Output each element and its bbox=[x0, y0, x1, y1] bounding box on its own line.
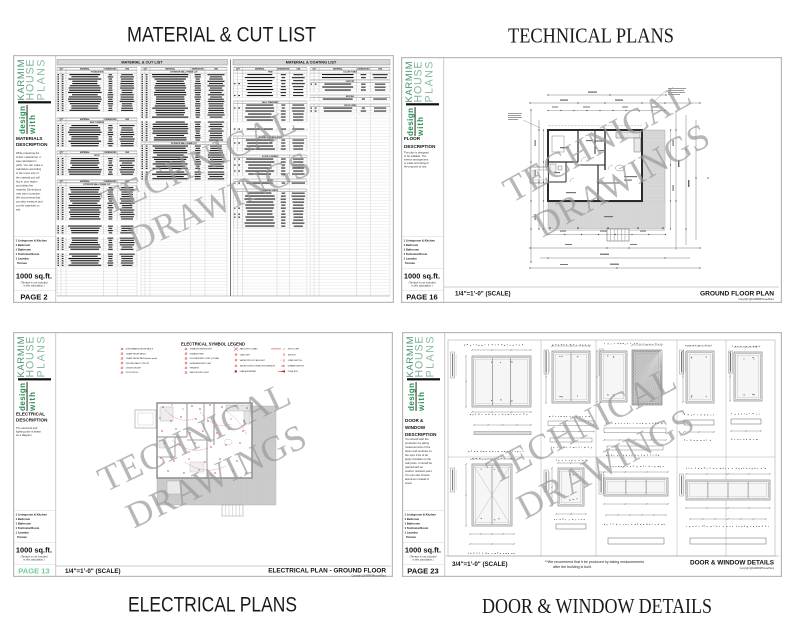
svg-text:ELECTRICAL PLANS: ELECTRICAL PLANS bbox=[128, 594, 297, 617]
svg-text:1 Bedroom: 1 Bedroom bbox=[405, 517, 420, 521]
svg-text:material. Dimensions: material. Dimensions bbox=[16, 187, 42, 191]
svg-text:S: S bbox=[283, 353, 285, 357]
svg-text:Terrace: Terrace bbox=[16, 261, 28, 265]
svg-text:Copyright @KARMIMHousePlans: Copyright @KARMIMHousePlans bbox=[352, 574, 387, 577]
svg-text:1 Bathroom: 1 Bathroom bbox=[16, 522, 32, 526]
svg-text:While preparing the: While preparing the bbox=[16, 151, 40, 155]
svg-text:production by taking: production by taking bbox=[405, 441, 430, 445]
svg-text:as a diagram.: as a diagram. bbox=[16, 433, 33, 437]
svg-text:1 Livingroom & Kitchen: 1 Livingroom & Kitchen bbox=[16, 513, 48, 517]
svg-text:PUSH BOX: PUSH BOX bbox=[288, 371, 299, 373]
svg-text:15 AMP RECEPTACLE: 15 AMP RECEPTACLE bbox=[126, 352, 147, 355]
svg-text:design: design bbox=[18, 106, 27, 134]
svg-text:1 Technical Room: 1 Technical Room bbox=[405, 526, 429, 530]
svg-text:1 Technical Room: 1 Technical Room bbox=[16, 526, 40, 530]
svg-text:parts. You can make a: parts. You can make a bbox=[16, 163, 43, 167]
svg-text:MATERIALS: MATERIALS bbox=[16, 136, 42, 141]
svg-text:1 Laundry: 1 Laundry bbox=[16, 257, 30, 261]
svg-text:15 AMP RECEPTACLE(water-proof): 15 AMP RECEPTACLE(water-proof) bbox=[126, 357, 158, 360]
svg-text:1 Bathroom: 1 Bathroom bbox=[404, 248, 420, 252]
svg-text:ELECTRICAL PLAN - GROUND FLOOR: ELECTRICAL PLAN - GROUND FLOOR bbox=[268, 568, 386, 575]
svg-text:WINDOW: WINDOW bbox=[405, 425, 426, 430]
svg-text:PENDENT: PENDENT bbox=[190, 368, 200, 370]
svg-text:to be editable. The: to be editable. The bbox=[404, 154, 427, 158]
svg-text:wall joints. It should be: wall joints. It should be bbox=[405, 461, 433, 465]
svg-text:in this calculation.): in this calculation.) bbox=[412, 558, 433, 562]
svg-text:**We recommend that it be prod: **We recommend that it be produced by ta… bbox=[545, 560, 644, 564]
svg-text:GROUND FAULT CIRCUIT: GROUND FAULT CIRCUIT bbox=[126, 362, 150, 365]
svg-text:PLANS: PLANS bbox=[35, 337, 47, 378]
svg-text:EXHAUST FAN: EXHAUST FAN bbox=[190, 352, 204, 355]
svg-text:1 Technical Room: 1 Technical Room bbox=[404, 252, 428, 256]
svg-text:1000 sq.ft.: 1000 sq.ft. bbox=[16, 546, 52, 555]
svg-text:painted with an: painted with an bbox=[405, 465, 424, 469]
svg-text:PAGE 16: PAGE 16 bbox=[406, 293, 438, 302]
svg-text:DOOR &: DOOR & bbox=[405, 418, 424, 423]
svg-text:1 Laundry: 1 Laundry bbox=[404, 257, 418, 261]
svg-text:timber material list, it: timber material list, it bbox=[16, 155, 41, 159]
svg-text:Terrace: Terrace bbox=[404, 261, 416, 265]
svg-text:1/4"=1’-0" (SCALE): 1/4"=1’-0" (SCALE) bbox=[455, 291, 511, 298]
svg-text:aluminum instead of: aluminum instead of bbox=[405, 477, 429, 481]
svg-text:Terrace: Terrace bbox=[405, 535, 417, 539]
svg-text:You should start the: You should start the bbox=[405, 437, 429, 441]
svg-text:Copyright @KARMIMHousePlans: Copyright @KARMIMHousePlans bbox=[740, 567, 775, 570]
svg-text:Terrace: Terrace bbox=[16, 535, 28, 539]
svg-text:is made according to: is made according to bbox=[404, 161, 429, 165]
svg-text:EXHAUST FAN W/LIGHT: EXHAUST FAN W/LIGHT bbox=[190, 348, 213, 351]
svg-text:FLUORESCENT LIGHT (4 TUBE): FLUORESCENT LIGHT (4 TUBE) bbox=[190, 358, 220, 360]
svg-text:the purpose of use.: the purpose of use. bbox=[404, 165, 427, 169]
svg-text:TECHNICAL PLANS: TECHNICAL PLANS bbox=[508, 24, 674, 48]
svg-text:interior arrangement: interior arrangement bbox=[404, 158, 428, 162]
svg-text:may vary in practice.: may vary in practice. bbox=[16, 192, 41, 196]
svg-text:INCANDESCENT LIGHT: INCANDESCENT LIGHT bbox=[190, 362, 212, 365]
svg-text:CAN LIGHT: CAN LIGHT bbox=[240, 353, 251, 356]
svg-text:You can also choose: You can also choose bbox=[405, 473, 430, 477]
svg-text:in this calculation.): in this calculation.) bbox=[411, 284, 432, 288]
svg-text:WATER PROOF CAN LIGHT: WATER PROOF CAN LIGHT bbox=[240, 359, 266, 362]
svg-text:1 Bathroom: 1 Bathroom bbox=[405, 522, 421, 526]
svg-text:PLANS: PLANS bbox=[35, 60, 47, 101]
svg-text:1 Bathroom: 1 Bathroom bbox=[16, 248, 32, 252]
svg-text:design: design bbox=[18, 383, 27, 411]
svg-text:after the building is built.: after the building is built. bbox=[553, 565, 592, 569]
svg-text:you also measure and: you also measure and bbox=[16, 200, 43, 204]
svg-text:DIMMER SWITCH: DIMMER SWITCH bbox=[288, 366, 305, 368]
svg-text:DESCRIPTION: DESCRIPTION bbox=[16, 142, 48, 147]
svg-text:SMOKE DETECTOR/MOTION SENSOR: SMOKE DETECTOR/MOTION SENSOR bbox=[240, 366, 276, 368]
svg-text:and obtain the: and obtain the bbox=[16, 183, 34, 187]
svg-text:1 Laundry: 1 Laundry bbox=[405, 531, 419, 535]
svg-text:with: with bbox=[28, 115, 37, 135]
svg-text:DESCRIPTION: DESCRIPTION bbox=[16, 418, 48, 423]
svg-text:lighting plan is drawn: lighting plan is drawn bbox=[16, 430, 42, 434]
svg-text:in this calculation.): in this calculation.) bbox=[23, 558, 44, 562]
svg-text:PLANS: PLANS bbox=[424, 337, 436, 378]
svg-text:design: design bbox=[407, 383, 416, 411]
svg-text:1/4"=1’-0" (SCALE): 1/4"=1’-0" (SCALE) bbox=[65, 568, 121, 575]
svg-text:to the uncut size of: to the uncut size of bbox=[16, 171, 39, 175]
svg-text:1000 sq.ft.: 1000 sq.ft. bbox=[405, 546, 441, 555]
svg-text:with: with bbox=[416, 117, 425, 137]
svg-text:calculation according: calculation according bbox=[16, 167, 42, 171]
svg-text:FLOOR: FLOOR bbox=[404, 136, 421, 141]
svg-text:1 Technical Room: 1 Technical Room bbox=[16, 252, 40, 256]
svg-text:DOOR & WINDOW DETAILS: DOOR & WINDOW DETAILS bbox=[690, 560, 775, 567]
svg-text:site.: site. bbox=[16, 208, 21, 212]
svg-text:3/4"=1’-0" (SCALE): 3/4"=1’-0" (SCALE) bbox=[452, 561, 508, 568]
svg-text:PLANS: PLANS bbox=[423, 62, 435, 103]
svg-text:DESCRIPTION: DESCRIPTION bbox=[405, 432, 437, 437]
svg-text:wood.: wood. bbox=[405, 481, 412, 485]
svg-text:1 Livingroom & Kitchen: 1 Livingroom & Kitchen bbox=[16, 239, 48, 243]
svg-text:1 Bedroom: 1 Bedroom bbox=[16, 517, 31, 521]
svg-text:3 WAY SWITCH: 3 WAY SWITCH bbox=[288, 359, 303, 362]
svg-text:S: S bbox=[283, 364, 285, 368]
svg-text:1 Laundry: 1 Laundry bbox=[16, 531, 30, 535]
svg-text:WALL MOUNT LIGHT: WALL MOUNT LIGHT bbox=[190, 371, 210, 374]
svg-text:DISTURBANCE RECEPTACLE: DISTURBANCE RECEPTACLE bbox=[126, 348, 154, 351]
svg-text:FAN LIGHT COMBO: FAN LIGHT COMBO bbox=[240, 348, 258, 351]
svg-text:CABLE/INTERNET: CABLE/INTERNET bbox=[240, 370, 257, 373]
svg-text:with: with bbox=[28, 392, 37, 412]
svg-text:Copyright @KARMIMHousePlans: Copyright @KARMIMHousePlans bbox=[738, 298, 775, 301]
svg-text:doors and windows on: doors and windows on bbox=[405, 449, 432, 453]
svg-text:the material you will: the material you will bbox=[16, 175, 40, 179]
svg-text:SPOT LIGHT: SPOT LIGHT bbox=[288, 349, 300, 351]
svg-text:the spot. First of all,: the spot. First of all, bbox=[405, 453, 429, 457]
svg-text:DESCRIPTION: DESCRIPTION bbox=[404, 144, 436, 149]
svg-text:1000 sq.ft.: 1000 sq.ft. bbox=[404, 272, 440, 281]
svg-text:was calculated in: was calculated in bbox=[16, 159, 37, 163]
svg-text:We recommend that: We recommend that bbox=[16, 196, 40, 200]
svg-text:design: design bbox=[406, 108, 415, 136]
svg-text:PAGE 2: PAGE 2 bbox=[20, 293, 47, 302]
svg-text:GROUND FLOOR PLAN: GROUND FLOOR PLAN bbox=[700, 291, 774, 298]
svg-text:MATERIAL & CUT LIST: MATERIAL & CUT LIST bbox=[127, 24, 316, 47]
svg-text:1 Livingroom & Kitchen: 1 Livingroom & Kitchen bbox=[405, 513, 437, 517]
svg-text:1000 sq.ft.: 1000 sq.ft. bbox=[16, 272, 52, 281]
svg-text:apply insulation to the: apply insulation to the bbox=[405, 457, 432, 461]
svg-text:CEILING MOUNT: CEILING MOUNT bbox=[126, 368, 142, 370]
svg-text:in this calculation.): in this calculation.) bbox=[23, 284, 44, 288]
svg-text:The plan is designed: The plan is designed bbox=[404, 151, 429, 155]
svg-text:with: with bbox=[417, 392, 426, 412]
svg-text:3: 3 bbox=[281, 360, 282, 362]
svg-text:PAGE 23: PAGE 23 bbox=[407, 567, 439, 576]
svg-text:buy in your region: buy in your region bbox=[16, 179, 38, 183]
svg-text:FLOOR PLUG: FLOOR PLUG bbox=[126, 372, 139, 374]
svg-text:ELECTRICAL SYMBOL LEGEND: ELECTRICAL SYMBOL LEGEND bbox=[181, 342, 245, 347]
svg-text:PAGE 13: PAGE 13 bbox=[18, 567, 50, 576]
svg-text:1 Livingroom & Kitchen: 1 Livingroom & Kitchen bbox=[404, 239, 436, 243]
svg-text:measurements of the: measurements of the bbox=[405, 445, 431, 449]
svg-text:1 Bedroom: 1 Bedroom bbox=[404, 243, 419, 247]
svg-text:outdoor resistant paint.: outdoor resistant paint. bbox=[405, 469, 433, 473]
svg-text:DOOR & WINDOW DETAILS: DOOR & WINDOW DETAILS bbox=[482, 594, 712, 618]
svg-text:The electrical and: The electrical and bbox=[16, 426, 38, 430]
svg-text:S: S bbox=[283, 358, 285, 362]
svg-text:cut the materials on: cut the materials on bbox=[16, 204, 40, 208]
svg-text:SWITCH: SWITCH bbox=[288, 354, 296, 356]
svg-text:1 Bedroom: 1 Bedroom bbox=[16, 243, 31, 247]
svg-text:MATERIAL & CUT LIST: MATERIAL & CUT LIST bbox=[121, 61, 163, 65]
svg-text:ELECTRICAL: ELECTRICAL bbox=[16, 412, 45, 417]
svg-text:MATERIAL & COATING LIST: MATERIAL & COATING LIST bbox=[286, 61, 337, 65]
